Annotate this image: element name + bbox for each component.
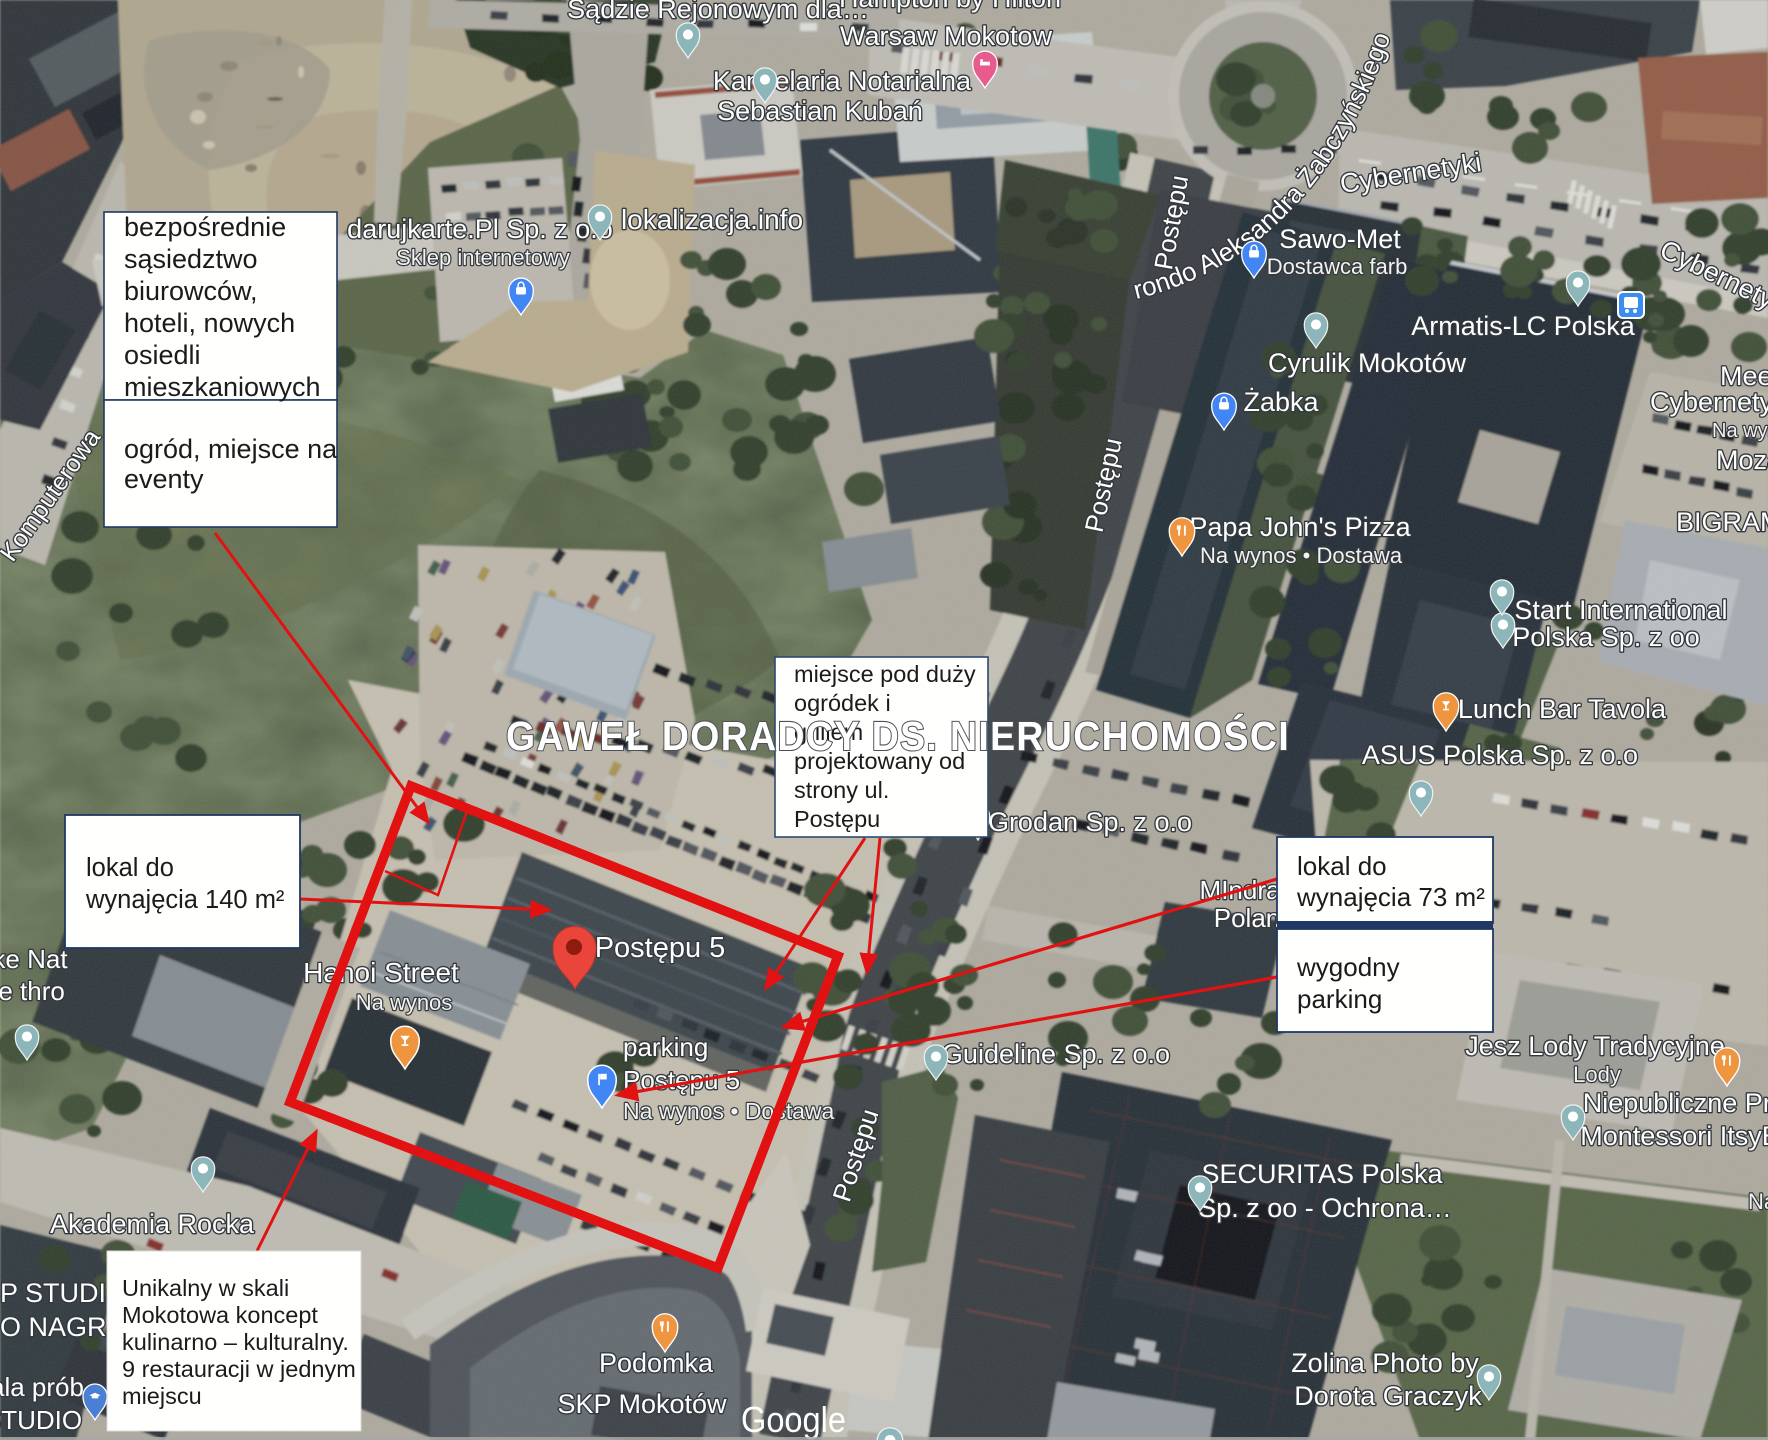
- svg-text:Dorota Graczyk: Dorota Graczyk: [1294, 1381, 1482, 1411]
- svg-text:Warsaw Mokotow: Warsaw Mokotow: [840, 21, 1053, 51]
- svg-text:Sądzie Rejonowym dla…: Sądzie Rejonowym dla…: [567, 0, 869, 24]
- svg-text:Hampton by Hilton: Hampton by Hilton: [839, 0, 1061, 13]
- svg-text:Na wynos • Dostawa: Na wynos • Dostawa: [1200, 543, 1403, 568]
- svg-text:9 restauracji w jednym: 9 restauracji w jednym: [122, 1356, 356, 1382]
- svg-text:Zolina Photo by: Zolina Photo by: [1291, 1348, 1479, 1378]
- svg-text:Start International: Start International: [1514, 595, 1727, 625]
- svg-text:Polska Sp. z oo: Polska Sp. z oo: [1512, 622, 1700, 652]
- svg-text:Guideline Sp. z o.o: Guideline Sp. z o.o: [942, 1039, 1170, 1069]
- svg-text:osiedli: osiedli: [124, 340, 201, 370]
- svg-text:parking: parking: [1297, 984, 1382, 1014]
- svg-text:parking: parking: [623, 1032, 708, 1062]
- svg-text:Sklep internetowy: Sklep internetowy: [396, 245, 570, 270]
- svg-text:darujkarte.Pl Sp. z o.o: darujkarte.Pl Sp. z o.o: [347, 214, 613, 244]
- svg-text:GAWEŁ DORADCY DS. NIERUCHOMOŚC: GAWEŁ DORADCY DS. NIERUCHOMOŚCI: [506, 713, 1290, 759]
- svg-text:Akademia Rocka: Akademia Rocka: [50, 1209, 255, 1239]
- svg-text:wynajęcia 140 m²: wynajęcia 140 m²: [85, 886, 284, 914]
- svg-text:ASUS Polska Sp. z o.o: ASUS Polska Sp. z o.o: [1362, 740, 1638, 770]
- svg-text:Polan: Polan: [1214, 903, 1281, 933]
- svg-text:hoteli, nowych: hoteli, nowych: [124, 308, 295, 338]
- svg-text:lokal do: lokal do: [1297, 851, 1387, 881]
- svg-text:lokalizacja.info: lokalizacja.info: [621, 204, 803, 235]
- svg-text:Postępu 5: Postępu 5: [595, 932, 726, 964]
- svg-text:miejsce pod duży: miejsce pod duży: [794, 661, 976, 687]
- svg-text:Żabka: Żabka: [1243, 386, 1319, 417]
- svg-text:Niepubliczne Prz: Niepubliczne Prz: [1583, 1088, 1768, 1118]
- svg-text:mieszkaniowych: mieszkaniowych: [124, 372, 321, 402]
- svg-text:Sp. z oo - Ochrona…: Sp. z oo - Ochrona…: [1198, 1193, 1452, 1223]
- svg-text:wygodny: wygodny: [1296, 952, 1400, 982]
- svg-text:ogród, miejsce na: ogród, miejsce na: [124, 434, 338, 464]
- svg-text:Google: Google: [741, 1399, 846, 1440]
- svg-text:Kancelaria Notarialna: Kancelaria Notarialna: [713, 66, 972, 96]
- svg-text:Na wyn: Na wyn: [1712, 420, 1768, 442]
- svg-text:Jesz Lody Tradycyjne: Jesz Lody Tradycyjne: [1465, 1031, 1725, 1061]
- svg-text:O NAGRA: O NAGRA: [0, 1312, 125, 1342]
- svg-text:Armatis-LC Polska: Armatis-LC Polska: [1411, 311, 1636, 341]
- svg-text:Lunch Bar Tavola: Lunch Bar Tavola: [1458, 694, 1667, 724]
- svg-text:Na w: Na w: [1748, 1189, 1768, 1214]
- svg-text:BIGRAM: BIGRAM: [1676, 507, 1768, 537]
- svg-text:strony ul.: strony ul.: [794, 777, 889, 803]
- svg-text:Hanoi Street: Hanoi Street: [303, 957, 459, 988]
- svg-text:lokal do: lokal do: [86, 854, 174, 882]
- svg-text:eventy: eventy: [124, 464, 204, 494]
- svg-text:STUDIO: STUDIO: [0, 1405, 82, 1435]
- svg-text:ke Nat: ke Nat: [0, 944, 68, 974]
- svg-text:Lody: Lody: [1573, 1062, 1621, 1087]
- svg-text:Mokotowa koncept: Mokotowa koncept: [122, 1302, 318, 1328]
- svg-text:bezpośrednie: bezpośrednie: [124, 212, 286, 242]
- svg-text:miejscu: miejscu: [122, 1383, 202, 1409]
- svg-text:wynajęcia 73 m²: wynajęcia 73 m²: [1296, 882, 1485, 912]
- svg-text:Sebastian Kubań: Sebastian Kubań: [717, 96, 923, 126]
- svg-text:SKP Mokotów: SKP Mokotów: [557, 1389, 727, 1419]
- svg-text:Moza: Moza: [1716, 445, 1768, 475]
- svg-text:Sawo-Met: Sawo-Met: [1279, 224, 1401, 254]
- svg-text:Na wynos • Dostawa: Na wynos • Dostawa: [623, 1098, 835, 1124]
- svg-text:Dostawca farb: Dostawca farb: [1267, 254, 1408, 279]
- svg-text:Podomka: Podomka: [599, 1348, 714, 1378]
- svg-text:Papa John's Pizza: Papa John's Pizza: [1189, 512, 1411, 542]
- svg-text:SECURITAS Polska: SECURITAS Polska: [1201, 1159, 1443, 1189]
- svg-text:sąsiedztwo: sąsiedztwo: [124, 244, 258, 274]
- svg-text:Unikalny w skali: Unikalny w skali: [122, 1275, 289, 1301]
- svg-text:ala prób: ala prób: [0, 1372, 84, 1402]
- svg-text:te thro: te thro: [0, 976, 65, 1006]
- svg-text:kulinarno – kulturalny.: kulinarno – kulturalny.: [122, 1329, 349, 1355]
- svg-text:biurowców,: biurowców,: [124, 276, 258, 306]
- svg-text:Montessori ItsyB: Montessori ItsyB: [1580, 1121, 1768, 1151]
- svg-text:Grodan Sp. z o.o: Grodan Sp. z o.o: [988, 807, 1192, 837]
- svg-text:Na wynos: Na wynos: [356, 990, 453, 1015]
- svg-text:Cybernetyki: Cybernetyki: [1650, 387, 1768, 417]
- svg-text:Postępu: Postępu: [794, 806, 880, 832]
- svg-text:Cyrulik Mokotów: Cyrulik Mokotów: [1268, 348, 1467, 378]
